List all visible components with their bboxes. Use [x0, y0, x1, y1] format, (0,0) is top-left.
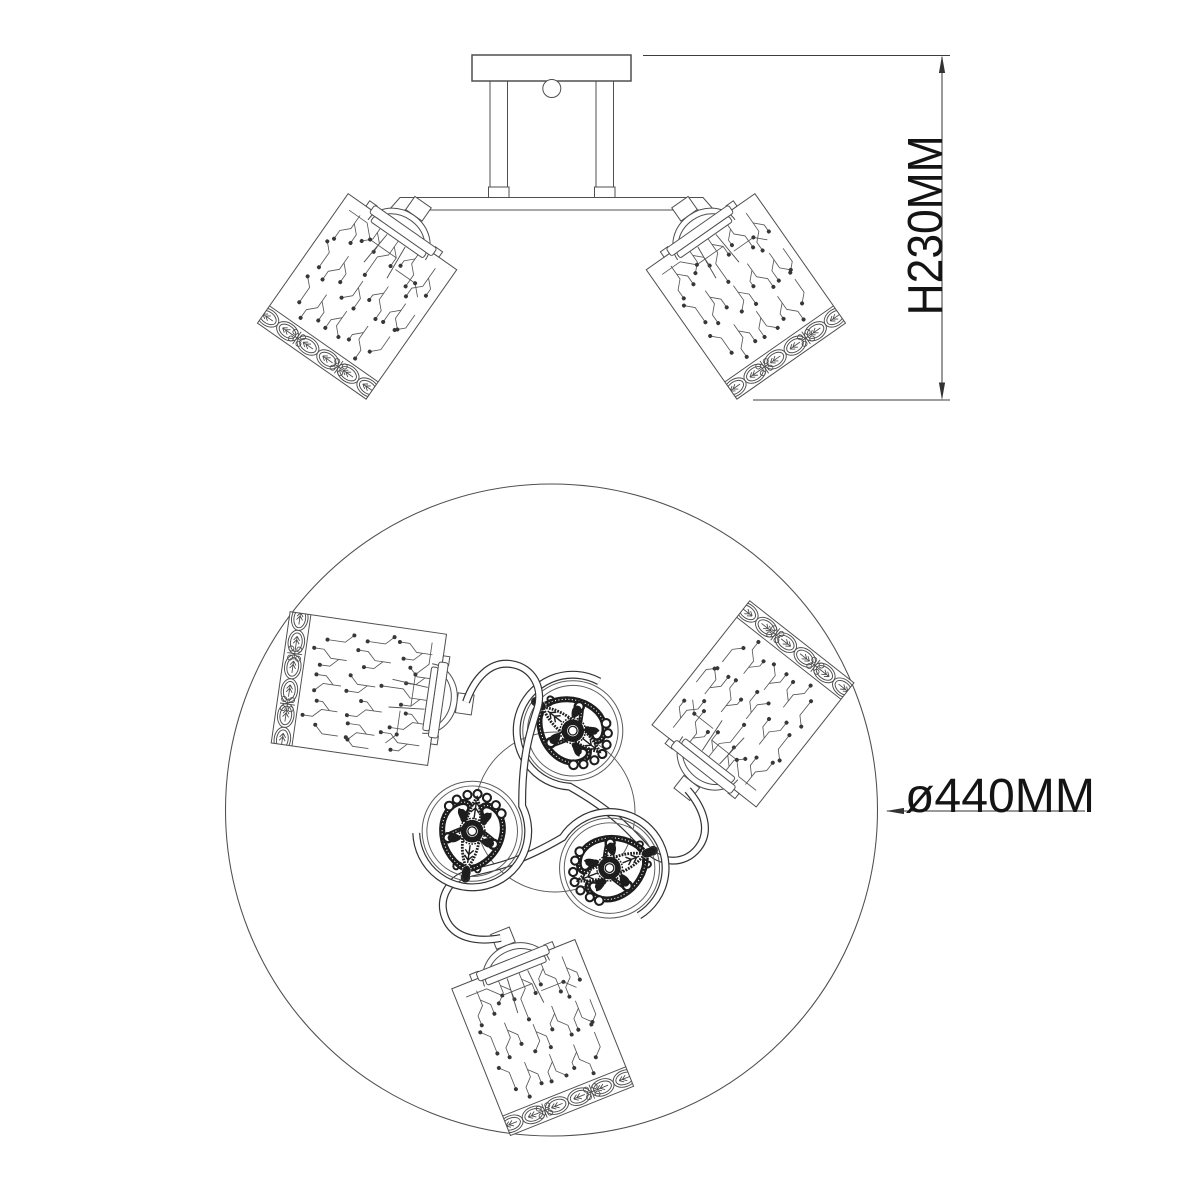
- svg-text:H230MM: H230MM: [899, 135, 953, 315]
- svg-text:ø440MM: ø440MM: [905, 770, 1095, 823]
